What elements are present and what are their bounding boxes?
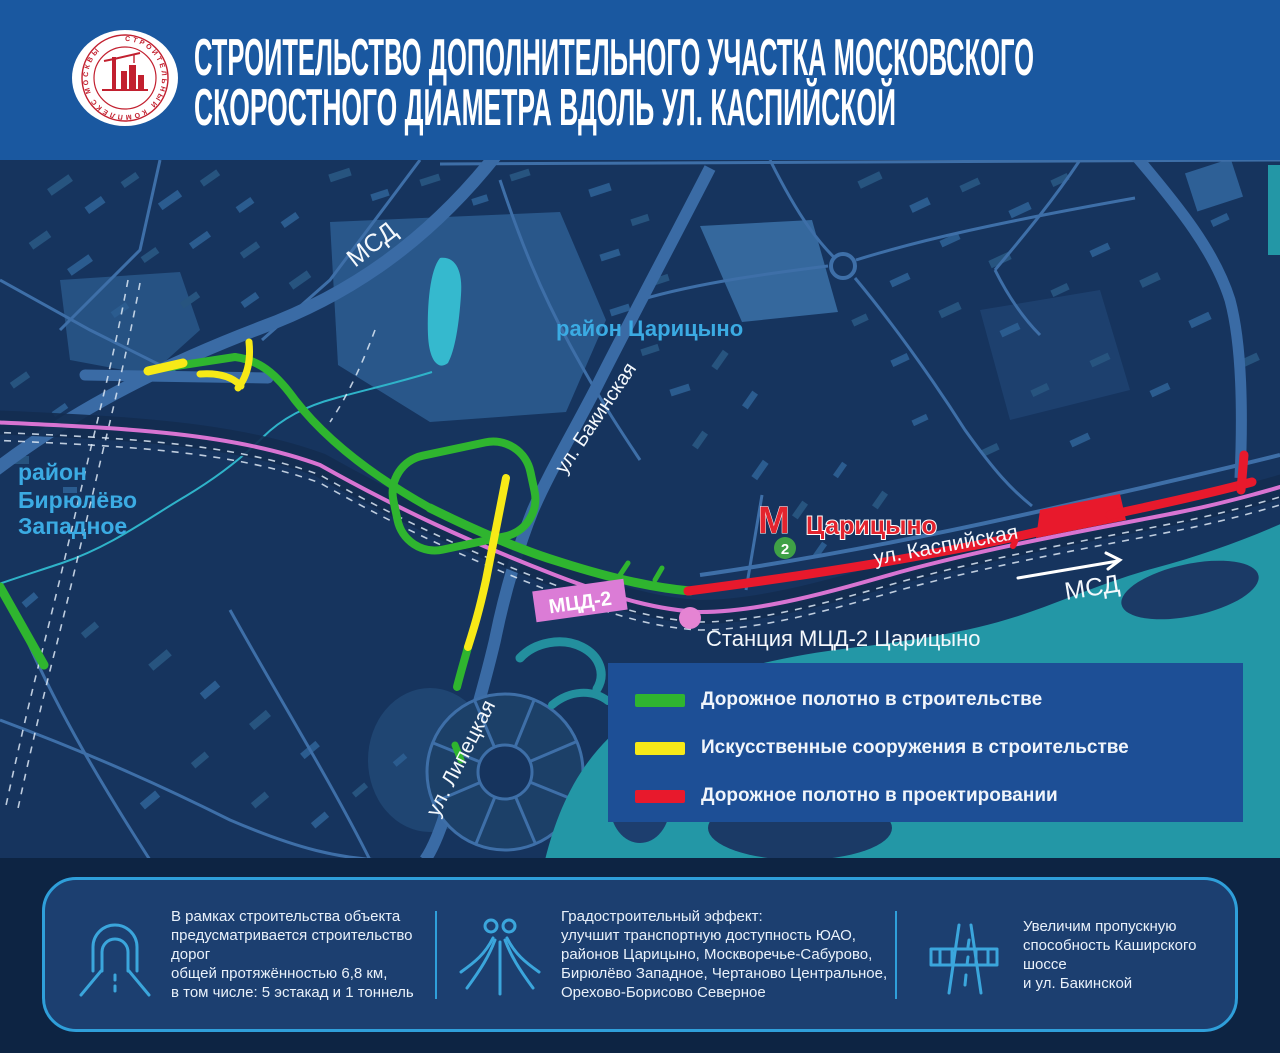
metro-m-icon: М	[758, 500, 790, 542]
stroykompleks-logo-icon: СТРОИТЕЛЬНЫЙ КОМПЛЕКС МОСКВЫ	[68, 26, 183, 132]
header: СТРОИТЕЛЬНЫЙ КОМПЛЕКС МОСКВЫ СТРОИТЕЛЬСТ…	[0, 0, 1280, 160]
page-title-line2: СКОРОСТНОГО ДИАМЕТРА ВДОЛЬ УЛ. КАСПИЙСКО…	[194, 78, 896, 137]
label-mcd2-station: Станция МЦД-2 Царицыно	[706, 626, 981, 651]
footer-info-box: В рамках строительства объекта предусмат…	[42, 877, 1238, 1032]
highway-icon	[925, 913, 1003, 997]
legend-label: Дорожное полотно в строительстве	[701, 689, 1042, 711]
metro-station-name: Царицыно	[806, 512, 937, 540]
footer-item-roads: В рамках строительства объекта предусмат…	[45, 907, 435, 1002]
legend-item-design: Дорожное полотно в проектировании	[608, 772, 1243, 820]
label-district-biryulyovo-1: район	[18, 459, 87, 485]
infographic-page: СТРОИТЕЛЬНЫЙ КОМПЛЕКС МОСКВЫ СТРОИТЕЛЬСТ…	[0, 0, 1280, 1053]
legend: Дорожное полотно в строительстве Искусст…	[608, 663, 1243, 822]
metro-line-number: 2	[781, 541, 789, 558]
footer-item-effect: Градостроительный эффект: улучшит трансп…	[437, 907, 895, 1002]
footer-item-capacity: Увеличим пропускную способность Каширско…	[897, 913, 1235, 997]
legend-swatch-green-icon	[635, 694, 685, 707]
tunnel-icon	[79, 911, 151, 999]
legend-swatch-yellow-icon	[635, 742, 685, 755]
page-title: СТРОИТЕЛЬСТВО ДОПОЛНИТЕЛЬНОГО УЧАСТКА МО…	[188, 28, 1280, 153]
label-district-biryulyovo-3: Западное	[18, 513, 127, 539]
legend-item-structures: Искусственные сооружения в строительстве	[608, 724, 1243, 772]
mcd2-station-dot	[679, 607, 701, 629]
label-district-tsaritsyno: район Царицыно	[556, 316, 743, 341]
legend-label: Искусственные сооружения в строительстве	[701, 737, 1129, 759]
legend-label: Дорожное полотно в проектировании	[701, 785, 1058, 807]
footer-item-text: Увеличим пропускную способность Каширско…	[1023, 917, 1235, 993]
legend-item-construction: Дорожное полотно в строительстве	[608, 676, 1243, 724]
legend-swatch-red-icon	[635, 790, 685, 803]
interchange-icon	[457, 914, 541, 996]
label-district-biryulyovo-2: Бирюлёво	[18, 487, 137, 513]
footer-item-text: В рамках строительства объекта предусмат…	[171, 907, 435, 1002]
footer-item-text: Градостроительный эффект: улучшит трансп…	[561, 907, 887, 1002]
